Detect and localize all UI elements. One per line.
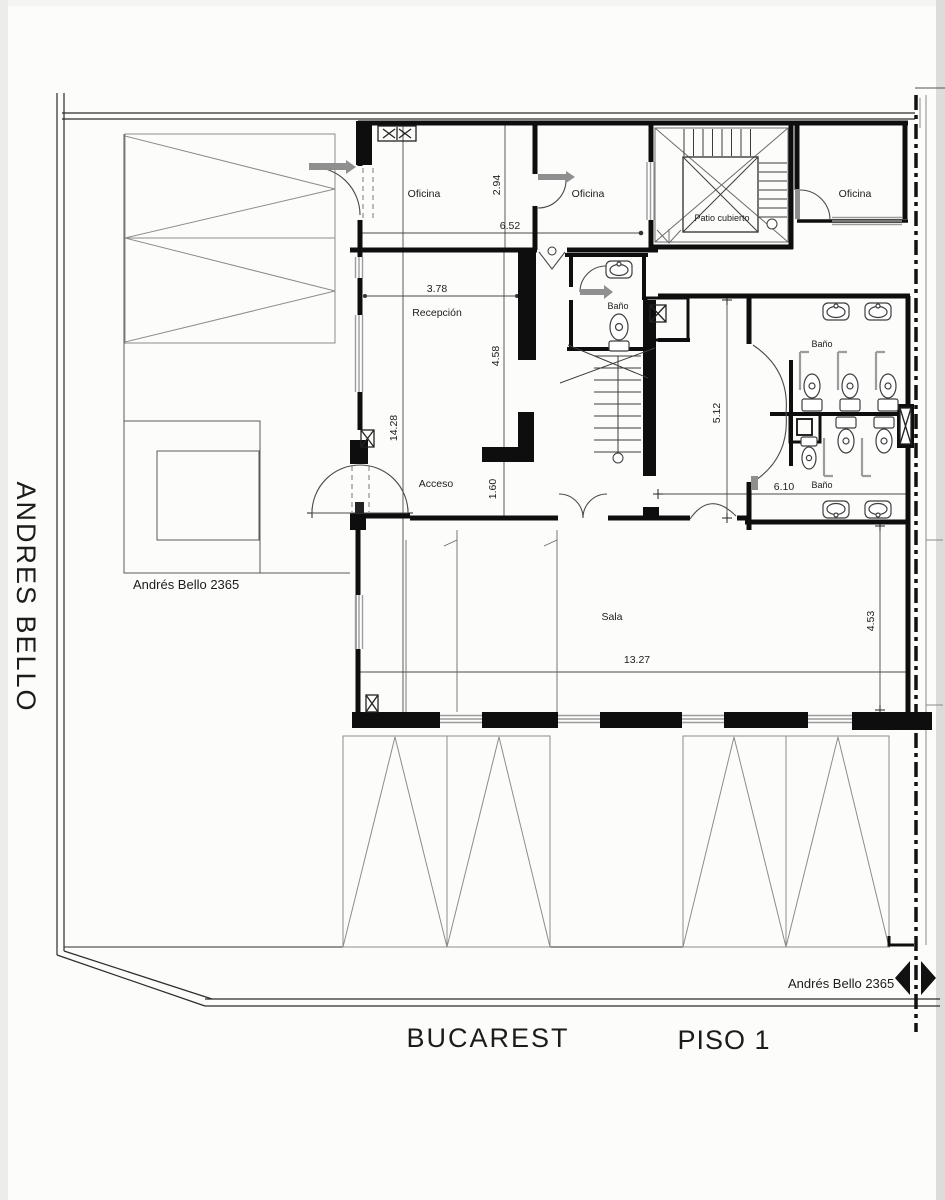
- floor-plan-canvas: ANDRES BELLO BUCAREST PISO 1 Andrés Bell…: [0, 0, 945, 1200]
- patio-stair: [655, 128, 788, 243]
- hall-sink: [606, 261, 632, 278]
- bath-bottom-sinks: [823, 501, 891, 518]
- room-label-bano-hall: Baño: [607, 301, 628, 311]
- vent-symbol: [378, 126, 416, 141]
- dim-entry-step: 1.60: [487, 479, 499, 500]
- yard-door-arc: [312, 167, 360, 215]
- window-xbox-b: [366, 695, 378, 712]
- dim-dots: [363, 231, 643, 298]
- oficina-door-arc: [538, 180, 566, 208]
- corridor-door-arc: [690, 504, 736, 519]
- dim-sala-width: 13.27: [624, 654, 650, 666]
- dim-recepcion-width: 3.78: [427, 283, 448, 295]
- dim-crosses: [307, 295, 885, 715]
- street-label-bottom: BUCAREST: [406, 1023, 569, 1053]
- room-label-oficina-right: Oficina: [839, 188, 872, 200]
- room-label-recepcion: Recepción: [412, 307, 462, 319]
- room-label-sala: Sala: [601, 611, 622, 623]
- chevron-bay: [125, 134, 335, 343]
- yard-layer: [124, 134, 889, 947]
- sala-double-door-arcs: [559, 494, 607, 518]
- dim-oficinas-width: 6.52: [500, 220, 521, 232]
- bath-bottom-toilets: [801, 417, 894, 469]
- room-label-bano-top: Baño: [811, 339, 832, 349]
- room-label-bano-bottom: Baño: [811, 480, 832, 490]
- dim-recepcion-depth: 4.58: [490, 346, 502, 367]
- entrance-pivot: [355, 502, 364, 513]
- door-leaves: [309, 160, 800, 490]
- street-label-left: ANDRES BELLO: [11, 481, 41, 712]
- dim-bath-depth: 5.12: [711, 403, 723, 424]
- address-label-left: Andrés Bello 2365: [133, 577, 239, 592]
- walls-layer: [350, 123, 910, 714]
- dim-oficina-depth: 2.94: [491, 175, 503, 196]
- planter: [124, 134, 350, 573]
- oficina-right-door-arc: [800, 190, 830, 220]
- hall-toilet: [609, 314, 629, 351]
- room-label-patio: Patio cubierto: [694, 213, 749, 223]
- bath-top-toilets: [802, 374, 898, 411]
- parking-left: [343, 736, 550, 947]
- address-label-right: Andrés Bello 2365: [788, 976, 894, 991]
- dim-bath-width: 6.10: [774, 481, 795, 493]
- dim-sala-depth: 4.53: [865, 611, 877, 632]
- hall-bath-door-arc: [580, 266, 606, 292]
- paper-edges: [0, 0, 945, 1200]
- floorplan-page: ANDRES BELLO BUCAREST PISO 1 Andrés Bell…: [0, 0, 945, 1200]
- room-label-oficina-left: Oficina: [408, 188, 441, 200]
- main-stair: [560, 345, 655, 463]
- room-label-oficina-mid: Oficina: [572, 188, 605, 200]
- bath-top-sinks: [823, 303, 891, 320]
- plan-title: PISO 1: [677, 1025, 770, 1055]
- parking-right: [683, 736, 889, 947]
- dim-building-depth: 14.28: [388, 415, 400, 441]
- niche-xbox: [900, 408, 911, 444]
- room-label-acceso: Acceso: [419, 478, 454, 490]
